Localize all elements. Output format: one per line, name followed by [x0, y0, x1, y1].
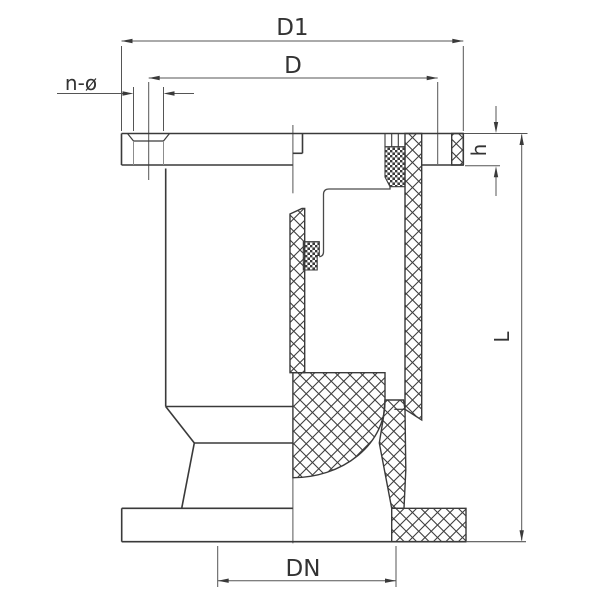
nozzle-seal-section [303, 242, 319, 270]
dimension-d-label: D [284, 53, 302, 79]
bonnet-seal-section [385, 147, 405, 187]
valve-cross-section-drawing: D1 D n-ø h L DN [0, 0, 600, 600]
seal-parts [303, 147, 405, 270]
nozzle-outlet-outline [319, 187, 390, 257]
body-wall-section [405, 134, 422, 421]
bonnet-seal-groove-lines [385, 134, 398, 147]
base-flange-section [392, 508, 466, 541]
flange-rim-section [452, 134, 464, 166]
valve-technical-drawing-page: D1 D n-ø h L DN [0, 0, 600, 600]
valve-body-outline [166, 169, 293, 509]
dimension-h-label: h [467, 144, 491, 157]
dimension-bolt-holes-label: n-ø [65, 71, 97, 95]
dimension-d1-label: D1 [276, 15, 308, 41]
dimension-dn-label: DN [286, 556, 321, 582]
dimension-l-label: L [490, 331, 514, 343]
dimension-dn: DN [218, 546, 396, 587]
dimension-h: h [463, 106, 527, 196]
dimension-l: L [490, 134, 524, 541]
dimension-bolt-holes: n-ø [57, 71, 194, 131]
sectioned-parts [290, 134, 466, 542]
float-ball-section [293, 373, 385, 478]
nozzle-tube-section [290, 209, 305, 373]
